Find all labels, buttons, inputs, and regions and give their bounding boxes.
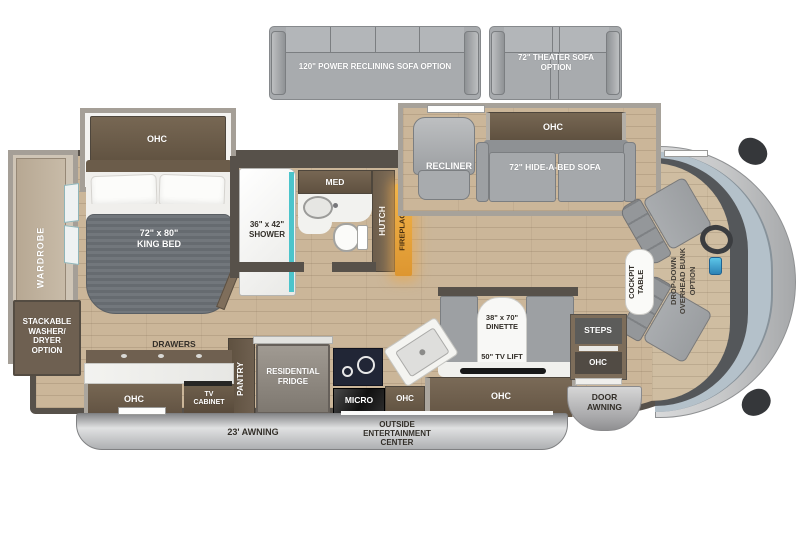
sofa-back-cushions [286, 27, 464, 53]
steps-label: STEPS [573, 325, 623, 335]
sink-counter [298, 218, 332, 234]
entertainment-center-label: OUTSIDE ENTERTAINMENT CENTER [338, 420, 456, 448]
sofa-ohc-label: OHC [518, 122, 588, 133]
awning-label: 23' AWNING [203, 427, 303, 438]
nightstand [64, 225, 79, 265]
hide-a-bed-cushion [558, 152, 625, 202]
door-threshold [575, 378, 622, 385]
wall-window [118, 407, 166, 415]
hide-a-bed-label: 72" HIDE-A-BED SOFA [488, 162, 622, 172]
sofa-armrest [491, 31, 505, 95]
recliner-seat [418, 170, 470, 200]
fridge-label: RESIDENTIAL FRIDGE [256, 367, 330, 386]
overhead-bunk-label: DROP-DOWN OVERHEAD BUNK OPTION [669, 225, 705, 337]
step-edge [579, 346, 618, 351]
microwave-label: MICRO [333, 395, 385, 405]
tv-lift-label: 50" TV LIFT [467, 352, 537, 361]
theater-sofa-label: 72" THEATER SOFA OPTION [506, 53, 606, 72]
dinette-label: 38" x 70" DINETTE [470, 313, 534, 331]
pantry-label: PANTRY [235, 339, 247, 419]
bathroom-bottom-wall [332, 262, 376, 272]
king-bed-label: 72" x 80" KING BED [109, 228, 209, 250]
dresser-ohc-label: OHC [104, 394, 164, 405]
pillow [90, 174, 157, 208]
dinette-wall [438, 287, 578, 296]
bathroom-bottom-wall [238, 262, 304, 272]
bed-ohc-label: OHC [122, 134, 192, 145]
entertainment-door-line [341, 411, 553, 415]
sofa-armrest [606, 31, 620, 95]
burner-icon [357, 356, 375, 374]
recliner-label: RECLINER [409, 161, 489, 172]
sofa-armrest [464, 31, 479, 95]
water-bottle-icon [709, 257, 722, 275]
fridge-counter-edge [253, 336, 333, 344]
rv-floorplan: 120" POWER RECLINING SOFA OPTION 72" THE… [0, 0, 800, 545]
toilet-tank [357, 225, 368, 250]
hide-a-bed-cushion [489, 152, 556, 202]
med-cabinet-label: MED [304, 177, 366, 187]
drawer-knob-icon [196, 354, 202, 358]
faucet-icon [333, 203, 338, 208]
window [664, 150, 708, 157]
pillow [158, 174, 225, 208]
shower-label: 36" x 42" SHOWER [238, 220, 296, 239]
cockpit-table-label: COCKPIT TABLE [627, 247, 651, 317]
toilet [333, 223, 360, 252]
kitchen-ohc-label: OHC [384, 394, 426, 404]
drawers-label: DRAWERS [134, 339, 214, 349]
shower-left-wall [230, 156, 239, 278]
window [427, 105, 485, 113]
washer-dryer-label: STACKABLE WASHER/ DRYER OPTION [14, 317, 80, 355]
burner-icon [342, 366, 353, 377]
drawer-knob-icon [121, 354, 127, 358]
patio-awning [76, 413, 568, 450]
door-awning-label: DOOR AWNING [567, 392, 642, 412]
power-sofa-label: 120" POWER RECLINING SOFA OPTION [285, 62, 465, 72]
hutch-label: HUTCH [377, 186, 389, 256]
bathroom-sink [303, 196, 333, 219]
sofa-back-cushions [504, 27, 609, 53]
drawer-knob-icon [158, 354, 164, 358]
dinette-ohc-label: OHC [471, 391, 531, 402]
sofa-armrest [271, 31, 286, 95]
tv-lift-slot [460, 368, 546, 374]
entry-ohc-label: OHC [573, 358, 623, 368]
tv-cabinet-label: TV CABINET [184, 391, 234, 408]
side-mirror-icon [734, 133, 772, 169]
nightstand [64, 183, 79, 223]
